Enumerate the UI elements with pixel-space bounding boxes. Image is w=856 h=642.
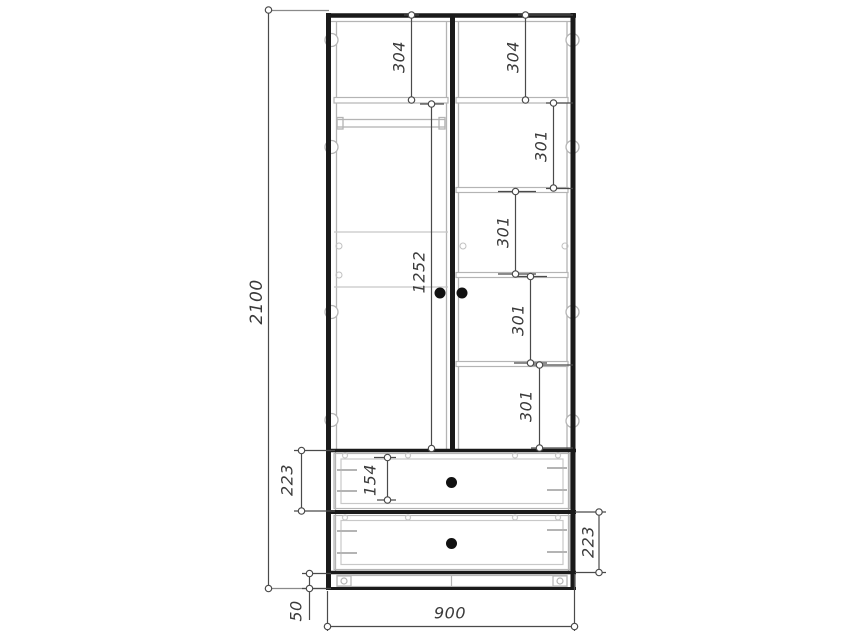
right-shelf-4 <box>456 362 568 367</box>
hanging-rod <box>337 118 445 130</box>
dim-label-lower-drawer-section: 223 <box>579 526 598 558</box>
dim-label-right-section-3: 301 <box>509 304 528 336</box>
dim-label-door-opening: 1252 <box>410 251 429 294</box>
drawing-linework <box>0 0 856 642</box>
dim-label-right-section-4: 301 <box>517 390 536 422</box>
left-door-knob-icon <box>435 288 446 299</box>
dim-label-right-top-section: 304 <box>504 41 523 73</box>
lower-drawer-knob-icon <box>446 538 457 549</box>
dim-label-overall-height: 2100 <box>247 279 267 324</box>
dim-label-right-section-1: 301 <box>532 130 551 162</box>
right-door-knob-icon <box>457 288 468 299</box>
wardrobe-technical-drawing: 2100 304 304 301 301 301 301 1252 223 15… <box>0 0 856 642</box>
dim-label-plinth-height: 50 <box>287 600 306 621</box>
upper-drawer-knob-icon <box>446 477 457 488</box>
dim-label-drawer-box: 154 <box>361 464 380 496</box>
dim-label-left-top-section: 304 <box>390 41 409 73</box>
plinth <box>337 576 567 587</box>
dim-label-upper-drawer-section: 223 <box>278 464 297 496</box>
dim-label-right-section-2: 301 <box>494 216 513 248</box>
dim-label-overall-width: 900 <box>434 604 466 623</box>
